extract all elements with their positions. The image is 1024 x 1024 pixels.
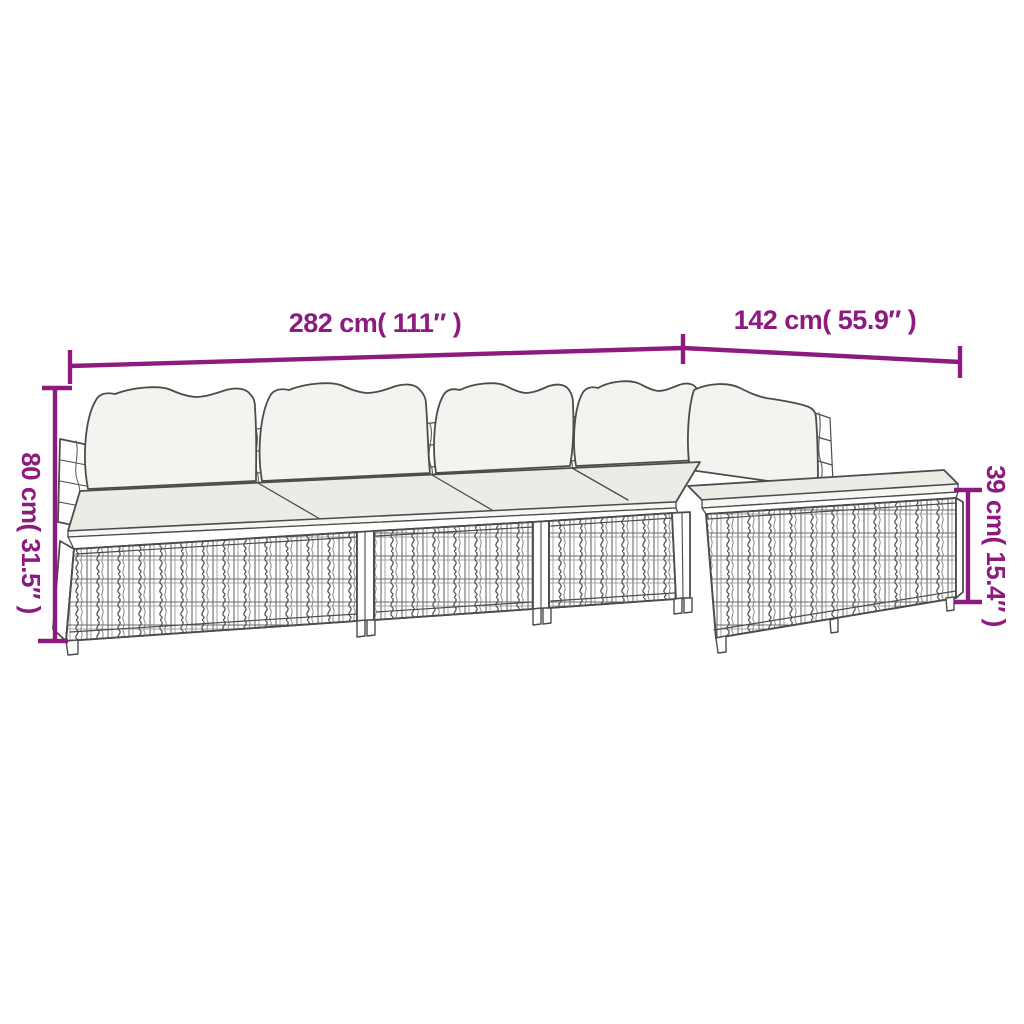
sofa-line-art (53, 381, 963, 655)
back-cushion (434, 383, 573, 473)
dimension-footstool-height-label: 39 cm( 15.4″ ) (981, 436, 1011, 656)
dimension-width-label: 282 cm( 111″ ) (245, 308, 505, 339)
dimension-depth-line (683, 346, 960, 378)
dimension-depth-label: 142 cm( 55.9″ ) (692, 305, 958, 336)
back-cushion (260, 383, 430, 481)
dimension-width-line (70, 334, 683, 384)
back-cushion (85, 387, 256, 489)
footstool (688, 470, 963, 653)
corner-back-cushion (688, 384, 818, 488)
diagram-canvas: 282 cm( 111″ ) 142 cm( 55.9″ ) 80 cm( 31… (0, 0, 1024, 1024)
product-dimension-illustration (0, 0, 1024, 1024)
dimension-height-label: 80 cm( 31.5″ ) (16, 423, 46, 643)
back-cushion (574, 381, 701, 466)
